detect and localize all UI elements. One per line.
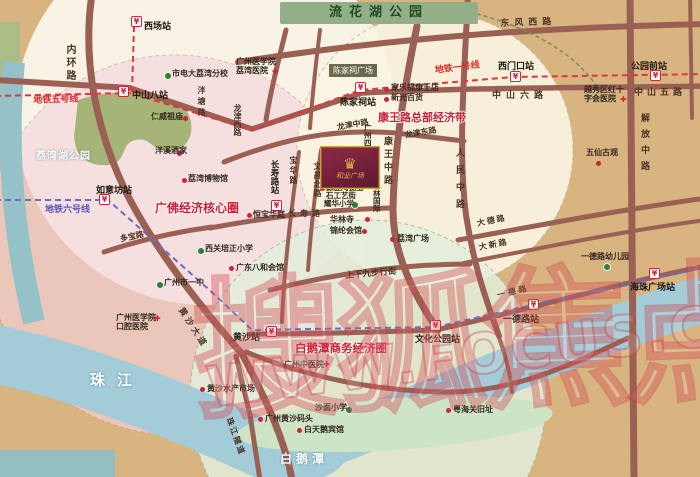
poi-yaohua: 耀华小学 [324, 200, 354, 208]
school-icon [197, 247, 205, 255]
baietan-label: 白鹅潭 [280, 450, 328, 467]
poi-yuexiu-redcross: 越秀区红十字会医院 [584, 86, 625, 104]
real-estate-location-map: 流花湖公园 陈家祠广场 ♛ 和业广场 广佛经济核心圈 康王路总部经济带 白鹅潭商… [0, 0, 700, 477]
station-chenjiaci: 陈家祠站 [340, 95, 376, 108]
zone-label-kangwang: 康王路总部经济带 [378, 109, 466, 125]
station-haizhusquare: 海珠广场站 [630, 280, 675, 293]
poi-huangsha-wharf: 广州黄沙码头 [265, 415, 313, 424]
poi-xinguang: 新光百货 [391, 94, 423, 103]
poi-yide-kindergarten: 一德路幼儿园 [581, 253, 629, 262]
project-crest-icon: ♛ [343, 156, 356, 172]
road-label-zhongshan6: 中山六路 [492, 88, 548, 101]
poi-dot [362, 229, 367, 234]
metro-line6-label: 地铁六号线 [45, 202, 90, 215]
poi-dot [200, 387, 205, 392]
poi-renwei: 仁威祖庙 [151, 113, 183, 122]
metro-icon: ¥ [649, 268, 660, 279]
poi-bahe: 广东八和会馆 [236, 264, 284, 273]
poi-gz-dental: 广州医学院口腔医院 [116, 314, 157, 332]
road-label-dongfengxi: 东风西路 [500, 14, 556, 29]
school-icon [164, 72, 172, 80]
road-label-neihuan: 内环路 [62, 44, 77, 83]
poi-wuxian: 五仙古观 [586, 149, 618, 158]
school-icon [156, 281, 164, 289]
metro-icon: ¥ [266, 326, 277, 337]
poi-dot [297, 428, 302, 433]
poi-dot [229, 266, 234, 271]
poi-dot [183, 116, 188, 121]
metro-line5-label: 地铁五号线 [33, 91, 78, 106]
poi-shidian: 市电大荔湾分校 [172, 70, 228, 79]
zone-label-guangfo: 广佛经济核心圈 [155, 199, 239, 216]
poi-dot [365, 217, 370, 222]
school-icon [603, 263, 611, 271]
poi-gz-tcm: 广州中医院 [284, 361, 324, 370]
poi-fish-market: 黄沙水产市场 [207, 385, 255, 394]
metro-icon: ¥ [528, 299, 539, 310]
road-label-zhongshan5: 中山五路 [634, 85, 686, 98]
poi-dot [446, 408, 451, 413]
station-gongyuanqian: 公园前站 [631, 59, 667, 72]
metro-icon: ¥ [430, 320, 441, 331]
poi-dot [390, 237, 395, 242]
station-wenhuapark: 文化公园站 [415, 332, 460, 345]
poi-white-swan: 白天鹅宾馆 [304, 426, 344, 435]
project-logo: ♛ 和业广场 [320, 146, 380, 189]
road-label-changshou: 长寿路 [288, 208, 324, 219]
poi-jinlun: 锦纶会馆 [330, 227, 362, 236]
poi-gz-no1: 广州市一中 [164, 279, 204, 288]
road-label-renminzhong: 人民中路 [453, 148, 466, 216]
zone-label-baietan: 白鹅潭商务经济圈 [295, 340, 387, 356]
poi-liwan-plaza: 荔湾广场 [397, 235, 429, 244]
station-xichang: 西场站 [144, 19, 171, 32]
poi-dot [384, 87, 389, 92]
poi-liwan-museum: 荔湾博物馆 [188, 175, 228, 184]
chenjiaci-square-box: 陈家祠广场 [329, 64, 377, 77]
river-corner [0, 450, 115, 477]
station-ximenkou: 西门口站 [498, 59, 534, 72]
road-label-baohua: 宝华路 [288, 156, 299, 186]
station-huangsha: 黄沙站 [233, 330, 260, 343]
poi-dot [182, 178, 187, 183]
poi-dot [258, 417, 263, 422]
metro-icon: ¥ [510, 71, 521, 82]
road-label-longjinxi: 龙津西路 [232, 104, 243, 136]
liwan-park-label: 荔湾湖公园 [36, 147, 91, 162]
poi-dot [384, 97, 389, 102]
station-changshoulu: 长寿路站 [268, 160, 280, 194]
metro-icon: ¥ [355, 82, 366, 93]
station-yidelu: 一德路站 [503, 312, 539, 325]
project-logo-text: 和业广场 [336, 172, 364, 180]
poi-gz-med-liwan: 广州医学院荔湾医院 [236, 58, 277, 76]
poi-carrefour: 家乐福康王店 [391, 84, 439, 93]
poi-dot [596, 161, 601, 166]
poi-panxi: 泮溪酒家 [155, 147, 187, 156]
poi-customs: 粤海关旧址 [453, 406, 493, 415]
station-zhongshan8: 中山八站 [132, 88, 168, 101]
pearl-river-label: 珠江 [90, 369, 144, 390]
minor-road-northeast [690, 0, 692, 118]
road-label-pantang: 泮塘路 [196, 86, 207, 119]
poi-hengbao: 恒宝华庭 [253, 211, 285, 220]
station-ruyifang: 如意坊站 [96, 183, 132, 196]
metro-icon: ¥ [118, 86, 129, 97]
road-label-jiefangzhong: 解放中路 [638, 113, 651, 177]
hospital-cross-icon: ✚ [323, 361, 330, 369]
poi-peizheng: 西关培正小学 [205, 245, 253, 254]
metro-icon: ¥ [131, 16, 142, 27]
liuhua-park-banner: 流花湖公园 [280, 2, 478, 24]
poi-dot [247, 213, 252, 218]
poi-shamian-school: 沙面小学 [315, 404, 347, 413]
poi-hualin-temple: 华林寺 [330, 216, 354, 225]
road-label-kangwangzhong: 康王中路 [381, 136, 394, 188]
